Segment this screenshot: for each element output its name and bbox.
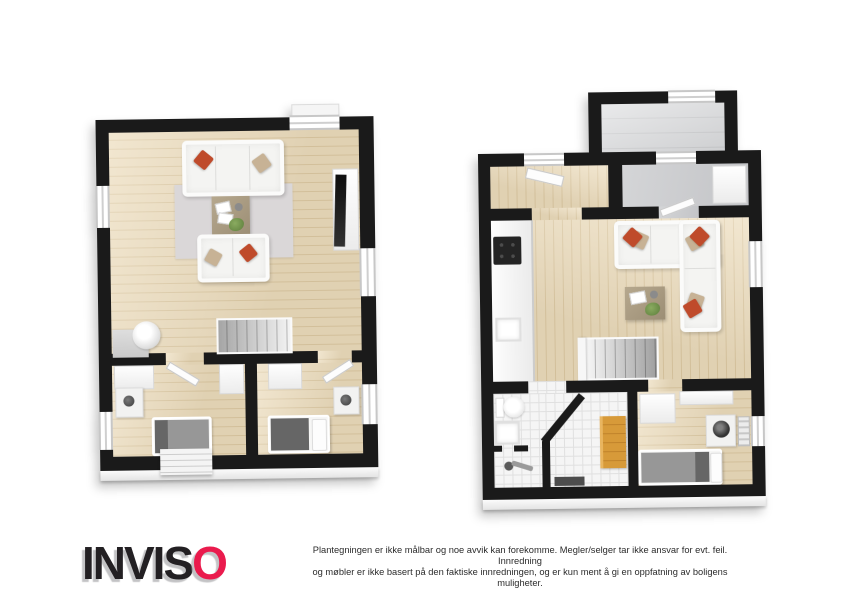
sauna-mat: [554, 477, 584, 486]
doorway: [532, 208, 582, 221]
bed: [638, 449, 722, 486]
bed-right: [268, 415, 331, 454]
window: [359, 248, 376, 296]
doorway-bedroom: [648, 379, 682, 391]
sofa-seam: [685, 268, 716, 269]
sofa-2-seat: [197, 234, 270, 283]
tan-pillow: [204, 248, 223, 267]
cooktop: [493, 236, 521, 264]
bed-blanket: [271, 418, 309, 451]
wall-under-hall: [699, 205, 760, 218]
nightstand: [333, 386, 359, 414]
window: [95, 186, 110, 228]
disclaimer-line-2: og møbler er ikke basert på den faktiske…: [290, 567, 750, 589]
bed-pillow: [312, 419, 327, 451]
balcony-door-window: [289, 115, 339, 131]
stairs: [585, 337, 660, 381]
coffee-table: [625, 286, 665, 320]
sofa-seam: [215, 146, 217, 190]
wall-under-hall: [479, 208, 532, 221]
tv: [334, 174, 347, 246]
wall-sauna-bedroom: [627, 392, 638, 486]
wall-shower: [542, 441, 551, 487]
wardrobe: [114, 365, 154, 390]
lamp: [340, 394, 351, 405]
wall-top: [97, 117, 289, 133]
front-door-opening: [524, 153, 564, 167]
window: [751, 416, 765, 446]
bed-pillow: [710, 453, 722, 483]
kitchen-sink: [495, 317, 521, 341]
washing-machine: [706, 414, 736, 446]
wall-top: [564, 152, 656, 166]
wardrobe: [679, 390, 733, 405]
balcony-floor: [601, 103, 725, 153]
disclaimer-text: Plantegningen er ikke målbar og noe avvi…: [290, 545, 750, 589]
balcony-door: [656, 151, 696, 165]
bathroom-sink: [495, 421, 520, 444]
lamp: [123, 395, 134, 406]
wall-stub: [514, 445, 528, 451]
wall-lower: [682, 378, 762, 391]
sofa-seam: [650, 226, 652, 264]
bed-blanket-dark: [695, 452, 709, 482]
sauna-bench: [600, 416, 627, 468]
red-pillow: [193, 149, 214, 170]
wall-bedroom-divider: [245, 364, 258, 455]
disclaimer-line-1: Plantegningen er ikke målbar og noe avvi…: [290, 545, 750, 567]
wardrobe: [712, 165, 747, 203]
wall-divider: [352, 350, 377, 362]
wall-stub: [494, 446, 502, 452]
wardrobe: [219, 364, 244, 394]
washer-lid: [713, 421, 730, 438]
stair-rail: [578, 338, 587, 381]
wall-lower: [481, 381, 528, 394]
stairs: [216, 317, 292, 354]
radiator: [738, 416, 750, 446]
bowl: [650, 291, 658, 299]
plant: [645, 302, 660, 315]
wall-under-hall: [582, 206, 659, 219]
wardrobe: [639, 393, 675, 423]
entry-steps: [160, 448, 212, 475]
logo-letter-o: O: [192, 537, 226, 589]
window: [748, 241, 763, 287]
balcony-wall-top: [588, 91, 668, 104]
doorway-bathroom: [528, 381, 566, 394]
bed-blanket: [641, 452, 695, 483]
corner-sofa-right: [679, 220, 722, 333]
sofa-seam: [232, 238, 234, 276]
main-floor-plan: [475, 86, 771, 514]
red-pillow: [239, 243, 259, 263]
plant: [229, 218, 244, 231]
inviso-logo: INVISO: [82, 536, 226, 590]
bowl: [235, 203, 243, 211]
tan-pillow: [251, 153, 272, 174]
window: [99, 412, 114, 450]
magazine: [629, 290, 647, 305]
coffee-table: [212, 196, 251, 237]
sofa-seam: [249, 146, 251, 190]
wardrobe: [268, 363, 302, 389]
sofa-3-seat: [182, 139, 285, 196]
balcony-railing: [668, 90, 715, 104]
logo-text-black: INVIS: [82, 537, 192, 589]
floor-plan-sheet: INVISO Plantegningen er ikke målbar og n…: [0, 0, 850, 601]
window: [361, 384, 378, 424]
nightstand: [115, 387, 143, 417]
upper-floor-plan: [93, 112, 388, 488]
